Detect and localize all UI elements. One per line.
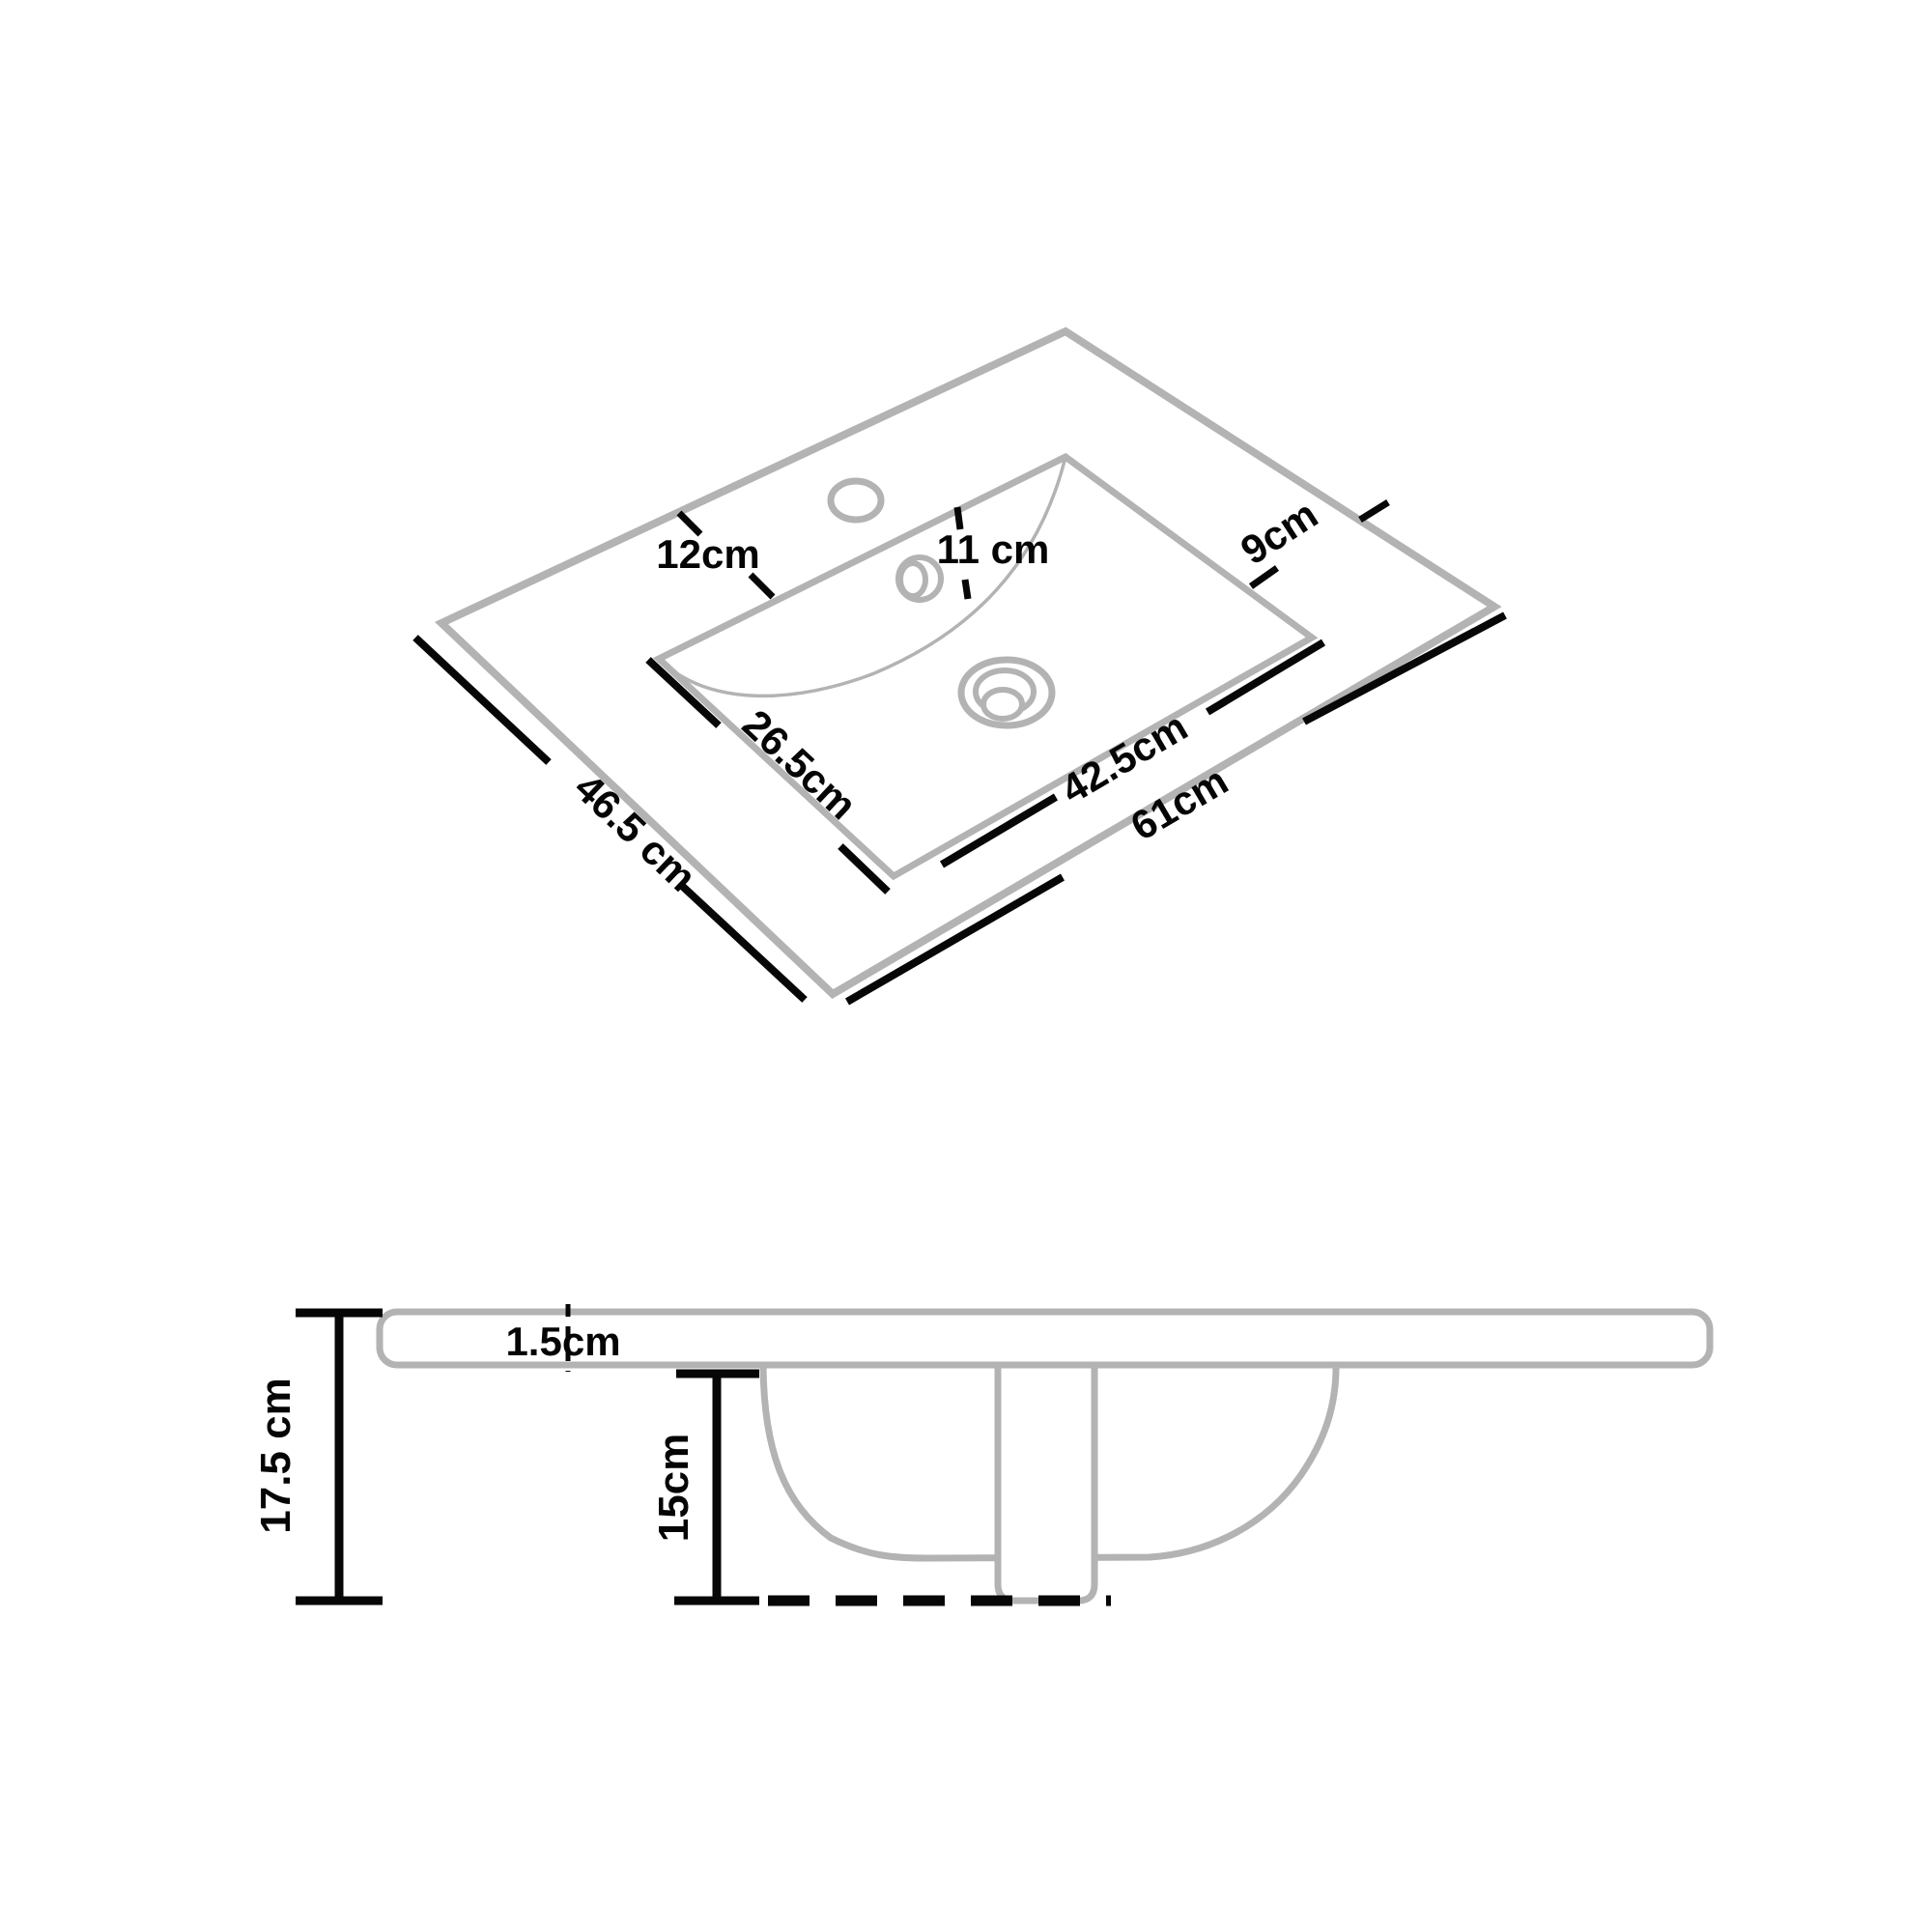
- label-11cm: 11 cm: [937, 526, 1050, 572]
- top-view: 12cm 11 cm 9cm 26.5cm 42.5cm: [415, 331, 1505, 1002]
- tick-9cm-upper: [1360, 502, 1388, 520]
- dimension-17-5cm: 17.5 cm: [252, 1313, 383, 1601]
- label-1-5cm: 1.5cm: [505, 1319, 620, 1364]
- drain-inner-icon: [983, 690, 1022, 719]
- diagram-canvas: 12cm 11 cm 9cm 26.5cm 42.5cm: [0, 0, 1932, 1932]
- faucet-hole-icon: [831, 481, 881, 520]
- side-view: 1.5cm 17.5 cm 15cm: [252, 1304, 1710, 1601]
- label-15cm: 15cm: [650, 1434, 697, 1543]
- sink-dimension-diagram: 12cm 11 cm 9cm 26.5cm 42.5cm: [0, 0, 1932, 1932]
- label-17-5cm: 17.5 cm: [252, 1378, 299, 1533]
- label-12cm: 12cm: [656, 531, 759, 577]
- dimension-15cm: 15cm: [650, 1374, 759, 1601]
- overflow-hole-inner-icon: [900, 563, 925, 596]
- tick-11cm-lower: [965, 580, 968, 599]
- drain-pipe: [998, 1367, 1094, 1601]
